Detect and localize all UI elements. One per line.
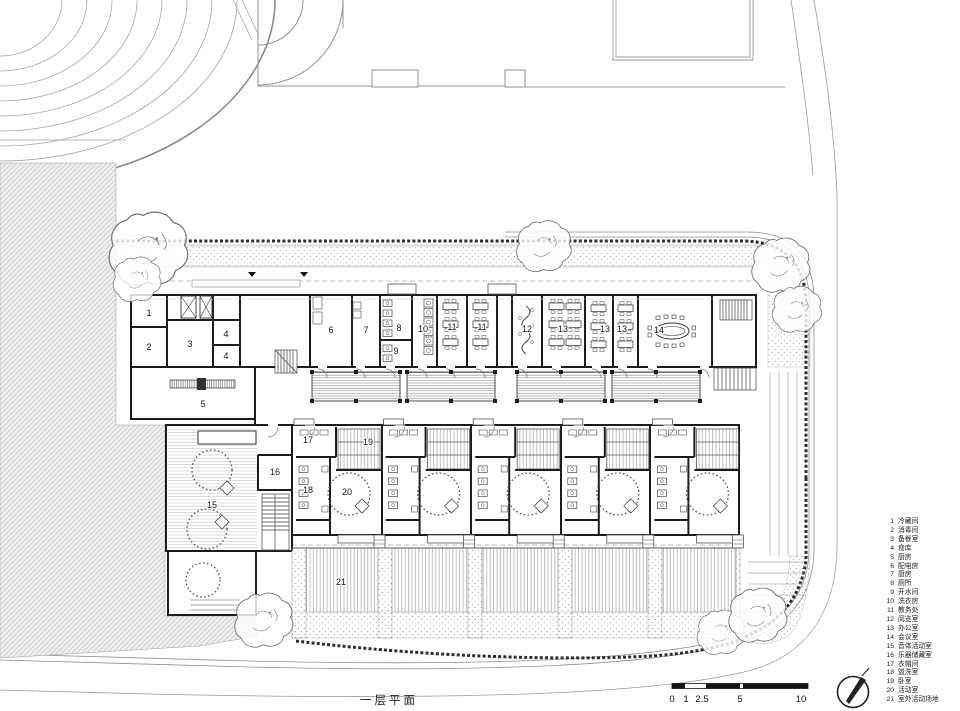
legend-item-label: 阅览室: [898, 616, 960, 625]
legend-item-number: 10: [884, 598, 894, 607]
legend-item: 6 配电房: [884, 563, 960, 572]
classroom-units: [294, 419, 743, 548]
legend: 1 冷藏间 2 消毒间 3 备餐室 4 食库 5 厨房 6 配电房 7 厨房: [884, 518, 960, 705]
entrance-marker-icon: [300, 272, 308, 277]
scale-tick: 5: [737, 694, 742, 705]
legend-item-number: 4: [884, 545, 894, 554]
legend-item: 16 乐器储藏室: [884, 652, 960, 661]
kitchen-wing: [170, 296, 235, 390]
room-number-label: 18: [303, 485, 313, 495]
tree-icon: [235, 593, 293, 647]
room-number-label: 12: [522, 324, 532, 334]
room-number-label: 16: [270, 467, 280, 477]
room-number-label: 5: [200, 399, 205, 409]
legend-item-number: 2: [884, 527, 894, 536]
music-activity-room: [168, 427, 257, 610]
legend-item-number: 7: [884, 571, 894, 580]
room-number-label: 13: [617, 324, 627, 334]
legend-item-label: 厨房: [898, 571, 960, 580]
room-number-label: 11: [477, 322, 486, 332]
legend-item-number: 1: [884, 518, 894, 527]
legend-item: 21 室外活动场地: [884, 696, 960, 705]
room-number-label: 2: [146, 342, 151, 352]
legend-item-label: 办公室: [898, 625, 960, 634]
legend-item-label: 盥洗室: [898, 669, 960, 678]
legend-item-label: 洗衣房: [898, 598, 960, 607]
legend-item-number: 6: [884, 563, 894, 572]
legend-item-number: 15: [884, 643, 894, 652]
legend-item: 10 洗衣房: [884, 598, 960, 607]
room-number-label: 13: [558, 324, 568, 334]
legend-item-number: 3: [884, 536, 894, 545]
scale-tick: 2.5: [695, 694, 708, 705]
room-number-label: 8: [396, 323, 401, 333]
room-number-label: 21: [336, 577, 346, 587]
room-number-label: 19: [363, 437, 373, 447]
legend-item-label: 卧室: [898, 678, 960, 687]
legend-item-number: 12: [884, 616, 894, 625]
legend-item: 18 盥洗室: [884, 669, 960, 678]
legend-item: 19 卧室: [884, 678, 960, 687]
legend-item-number: 21: [884, 696, 894, 705]
room-number-label: 1: [146, 308, 151, 318]
legend-item-number: 13: [884, 625, 894, 634]
legend-item: 1 冷藏间: [884, 518, 960, 527]
legend-item-label: 乐器储藏室: [898, 652, 960, 661]
legend-item: 9 开水间: [884, 589, 960, 598]
entry-porch: [488, 284, 516, 294]
legend-item: 3 备餐室: [884, 536, 960, 545]
legend-item: 2 消毒间: [884, 527, 960, 536]
north-arrow-icon: [838, 668, 870, 708]
toilet-fixtures: [383, 300, 392, 362]
scale-bar: 0 1 2.5 5 10: [669, 684, 808, 706]
floor-plan-sheet: 1234456789101111121313131415161718192021…: [0, 0, 960, 711]
scale-tick: 10: [796, 694, 807, 705]
legend-item: 12 阅览室: [884, 616, 960, 625]
room-number-label: 6: [328, 325, 333, 335]
adjacent-building-outline: [258, 0, 785, 87]
legend-item-number: 9: [884, 589, 894, 598]
legend-item-label: 备餐室: [898, 536, 960, 545]
legend-item-label: 厕所: [898, 580, 960, 589]
legend-item-number: 16: [884, 652, 894, 661]
entry-porch: [388, 284, 416, 294]
legend-item-number: 8: [884, 580, 894, 589]
scale-tick: 1: [683, 694, 688, 705]
legend-item-number: 5: [884, 554, 894, 563]
scale-tick: 0: [669, 694, 674, 705]
room-number-label: 3: [187, 339, 192, 349]
room-number-label: 17: [303, 435, 313, 445]
legend-item-label: 活动室: [898, 687, 960, 696]
kitchen-equipment: [197, 378, 206, 390]
legend-item-number: 20: [884, 687, 894, 696]
room-number-label: 11: [447, 322, 456, 332]
legend-item: 14 会议室: [884, 634, 960, 643]
legend-item: 7 厨房: [884, 571, 960, 580]
legend-item: 15 音体活动室: [884, 643, 960, 652]
room-number-label: 15: [207, 500, 217, 510]
room-number-label: 20: [342, 487, 352, 497]
legend-item: 8 厕所: [884, 580, 960, 589]
legend-item-label: 冷藏间: [898, 518, 960, 527]
room-number-label: 10: [418, 324, 428, 334]
room-number-label: 4: [223, 329, 228, 339]
room-number-label: 7: [363, 325, 368, 335]
legend-item-label: 室外活动场地: [898, 696, 960, 705]
room-number-label: 13: [600, 324, 610, 334]
courtyard-planters: [310, 370, 702, 403]
legend-item-number: 17: [884, 661, 894, 670]
legend-item: 20 活动室: [884, 687, 960, 696]
room-number-label: 14: [654, 325, 664, 335]
legend-item-number: 18: [884, 669, 894, 678]
legend-item-label: 会议室: [898, 634, 960, 643]
floor-plan-drawing: 1234456789101111121313131415161718192021…: [0, 0, 960, 711]
entry-canopy: [192, 280, 300, 287]
legend-item: 11 教务处: [884, 607, 960, 616]
legend-item-label: 音体活动室: [898, 643, 960, 652]
room-number-label: 9: [393, 346, 398, 356]
legend-item-label: 厨房: [898, 554, 960, 563]
legend-item-label: 消毒间: [898, 527, 960, 536]
cabinets: [313, 297, 361, 324]
legend-item-number: 19: [884, 678, 894, 687]
legend-item-label: 教务处: [898, 607, 960, 616]
legend-item-number: 11: [884, 607, 894, 616]
legend-item: 5 厨房: [884, 554, 960, 563]
legend-item: 17 衣帽间: [884, 661, 960, 670]
running-track: [0, 0, 275, 185]
room-number-label: 4: [223, 351, 228, 361]
legend-item-label: 食库: [898, 545, 960, 554]
entrance-marker-icon: [248, 272, 256, 277]
legend-item: 13 办公室: [884, 625, 960, 634]
legend-item: 4 食库: [884, 545, 960, 554]
legend-item-number: 14: [884, 634, 894, 643]
plan-title: 一层平面: [360, 694, 418, 707]
legend-item-label: 开水间: [898, 589, 960, 598]
